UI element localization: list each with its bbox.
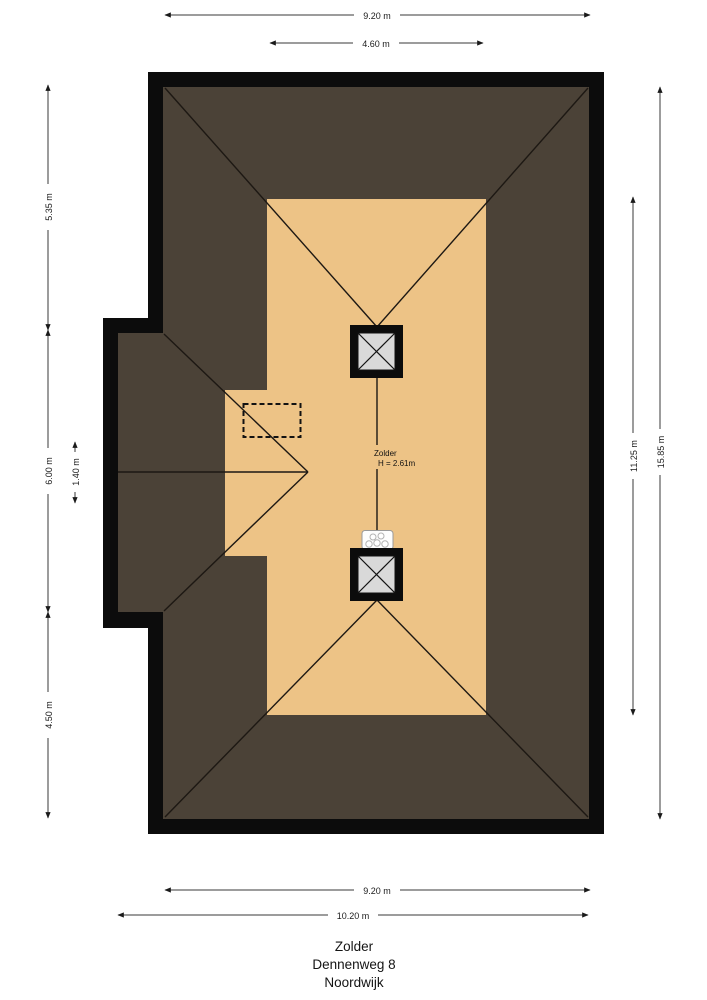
dim-label: 10.20 m [337,911,370,921]
dim-left-4-50: 4.50 m [42,612,54,818]
dim-label: 4.60 m [362,39,390,49]
plan-city: Noordwijk [324,975,384,990]
room-height-label: H = 2.61m [378,459,415,468]
floor-plan-canvas: Zolder H = 2.61m 9.20 m 4.60 m [0,0,707,1000]
ventilation-unit-dot [366,541,372,547]
dim-label: 6.00 m [44,457,54,485]
dim-bottom-10-20: 10.20 m [118,909,588,921]
dim-label: 11.25 m [629,440,639,472]
ventilation-unit-dot [382,541,388,547]
floorplan-page: Zolder H = 2.61m 9.20 m 4.60 m [0,0,707,1000]
dim-right-11-25: 11.25 m [627,197,639,715]
chimney-top [350,325,403,378]
dim-top-inner: 4.60 m [270,37,483,49]
dim-label: 5.35 m [44,193,54,221]
title-block: Zolder Dennenweg 8 Noordwijk [312,939,395,990]
dim-label: 15.85 m [656,436,666,469]
dim-label: 9.20 m [363,886,391,896]
dim-left-1-40: 1.40 m [69,442,81,503]
dim-right-15-85: 15.85 m [654,87,666,819]
room-name-label: Zolder [374,449,397,458]
ventilation-unit-dot [370,534,376,540]
dim-left-6-00: 6.00 m [42,330,54,612]
dim-label: 9.20 m [363,11,391,21]
dim-label: 4.50 m [44,701,54,729]
plan-address: Dennenweg 8 [312,957,395,972]
room-label: Zolder H = 2.61m [370,445,418,469]
dim-left-5-35: 5.35 m [42,85,54,330]
plan-title: Zolder [335,939,374,954]
dim-top-outer: 9.20 m [165,9,590,21]
ventilation-unit-dot [374,540,380,546]
ventilation-unit-dot [378,533,384,539]
dim-label: 1.40 m [71,458,81,486]
dim-bottom-9-20: 9.20 m [165,884,590,896]
